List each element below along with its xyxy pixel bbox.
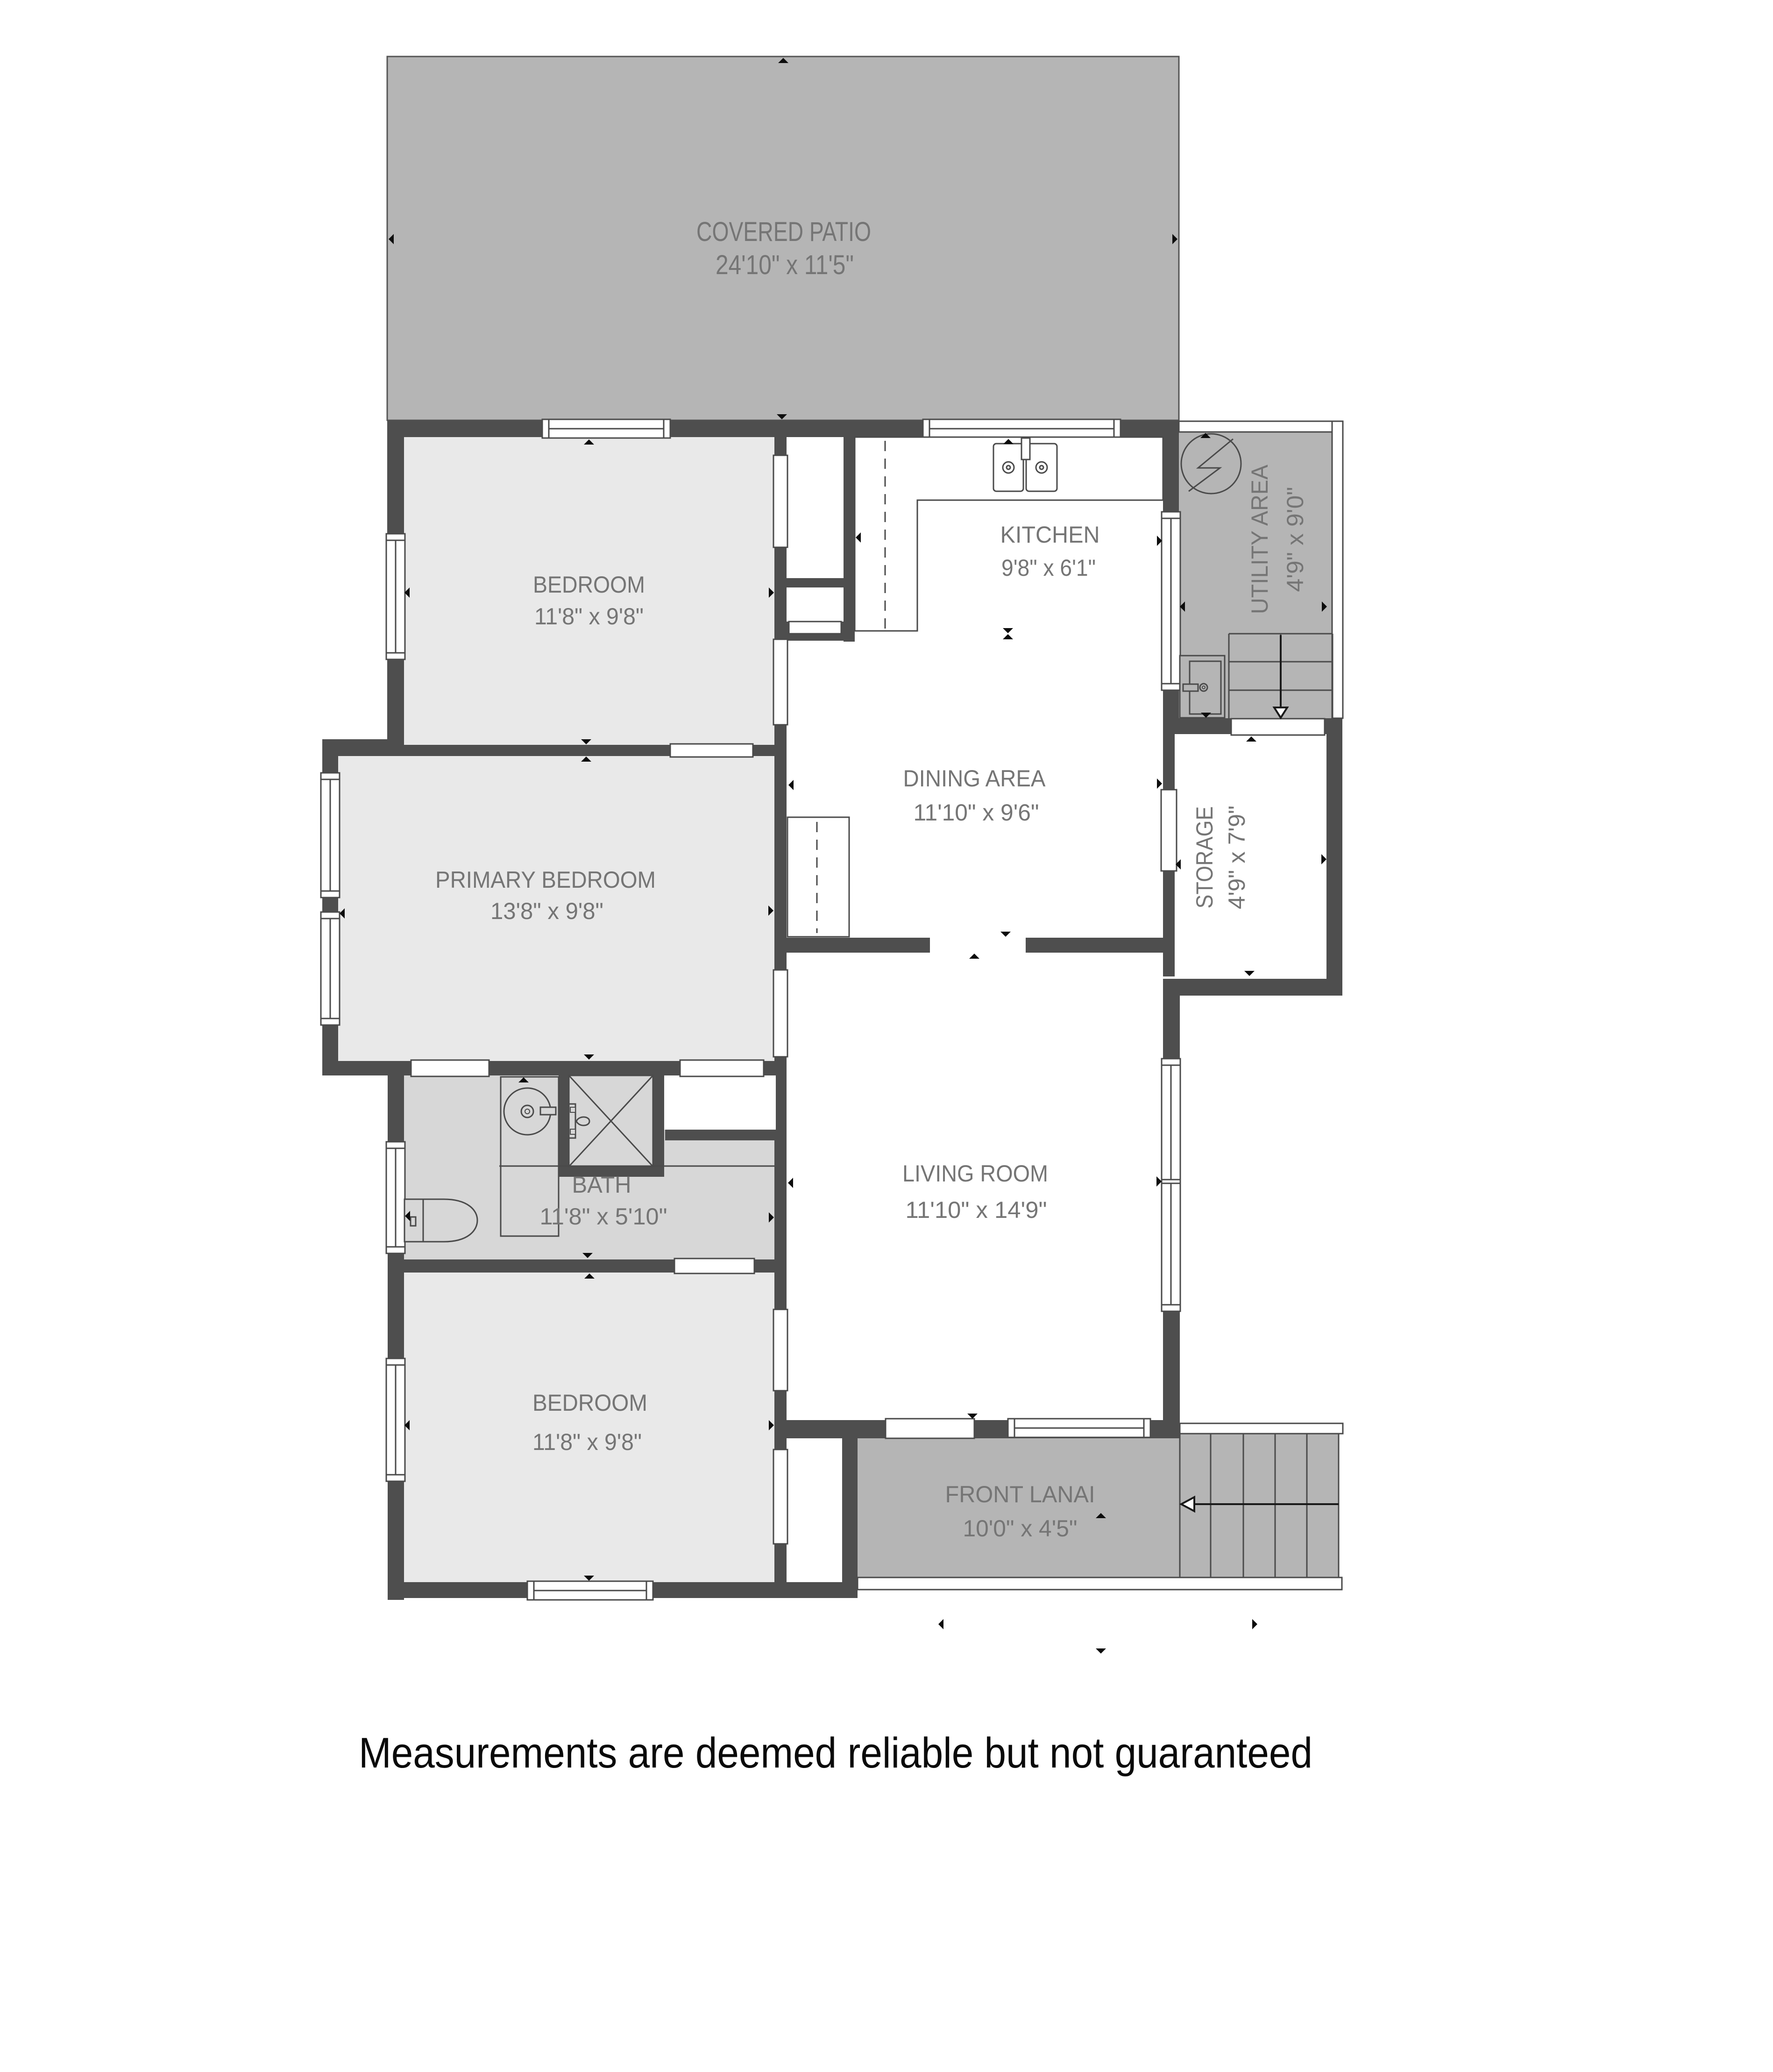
- svg-text:4'9" x 9'0": 4'9" x 9'0": [1282, 487, 1308, 592]
- svg-text:BEDROOM: BEDROOM: [533, 572, 645, 598]
- svg-text:11'8" x 9'8": 11'8" x 9'8": [532, 1429, 642, 1455]
- svg-text:BEDROOM: BEDROOM: [532, 1390, 647, 1416]
- svg-text:13'8" x 9'8": 13'8" x 9'8": [490, 898, 603, 924]
- svg-text:11'8" x 9'8": 11'8" x 9'8": [534, 603, 644, 629]
- svg-text:11'10" x 9'6": 11'10" x 9'6": [914, 799, 1039, 826]
- svg-text:10'0" x 4'5": 10'0" x 4'5": [963, 1515, 1078, 1542]
- svg-text:PRIMARY BEDROOM: PRIMARY BEDROOM: [435, 867, 656, 893]
- svg-text:9'8" x 6'1": 9'8" x 6'1": [1001, 555, 1096, 581]
- svg-text:4'9" x 7'9": 4'9" x 7'9": [1224, 806, 1250, 909]
- svg-text:FRONT LANAI: FRONT LANAI: [945, 1481, 1095, 1507]
- svg-text:24'10" x 11'5": 24'10" x 11'5": [716, 250, 854, 280]
- svg-text:BATH: BATH: [572, 1172, 631, 1198]
- svg-text:LIVING ROOM: LIVING ROOM: [902, 1160, 1048, 1187]
- svg-text:COVERED PATIO: COVERED PATIO: [696, 217, 871, 247]
- svg-text:11'10" x 14'9": 11'10" x 14'9": [906, 1197, 1047, 1223]
- svg-text:KITCHEN: KITCHEN: [1000, 522, 1100, 548]
- svg-text:11'8" x 5'10": 11'8" x 5'10": [540, 1203, 667, 1230]
- svg-text:DINING AREA: DINING AREA: [903, 765, 1046, 792]
- svg-text:UTILITY AREA: UTILITY AREA: [1247, 464, 1273, 614]
- svg-text:Measurements are deemed reliab: Measurements are deemed reliable but not…: [359, 1729, 1312, 1777]
- svg-text:STORAGE: STORAGE: [1191, 806, 1218, 909]
